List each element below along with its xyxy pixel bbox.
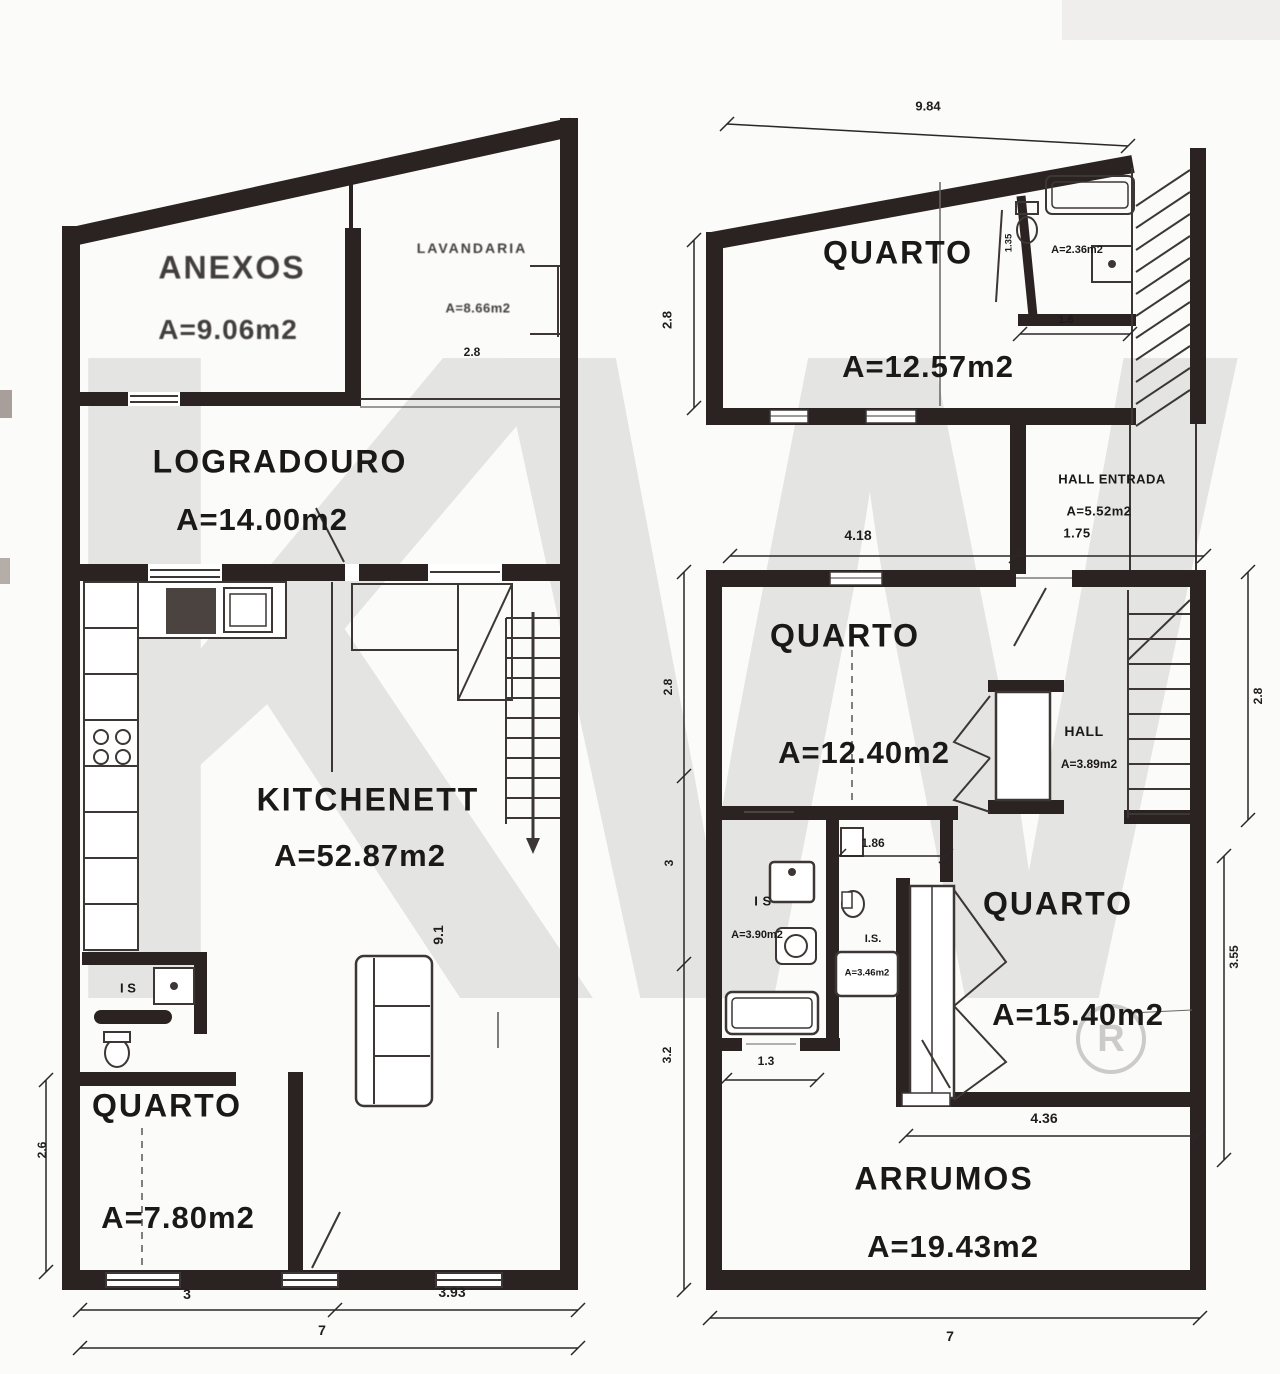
dim-label-lower-right-top: 2.8 [1251,688,1265,705]
dim-label-is-width: 1.3 [758,1054,775,1068]
dim-label-quarto2-width: 4.36 [1030,1110,1057,1126]
room-area-kitchenett: A=52.87m2 [274,838,446,874]
lower-plan-dimensions [677,565,1255,1325]
room-area-quarto2: A=15.40m2 [992,997,1164,1033]
dim-label-hall-entrada: 1.75 [1063,526,1090,541]
floorplan-drawing [0,0,1280,1374]
room-area-quarto1: A=12.40m2 [778,735,950,771]
room-label-arrumos: ARRUMOS [854,1161,1033,1198]
dim-label-is-upper-height: 1.35 [1004,234,1015,253]
room-label-is2: I.S. [865,933,882,945]
room-label-anexos: ANEXOS [158,250,305,287]
room-area-hall-entrada: A=5.52m2 [1066,504,1131,519]
dim-label-lower-left-bottom: 3.2 [660,1047,674,1064]
dim-label-left-total-width: 7 [318,1322,326,1338]
scanned-floorplan-page: KW R [0,0,1280,1374]
dim-label-lower-bottom: 7 [946,1328,954,1344]
dim-label-lower-right-mid: 3.55 [1227,945,1241,968]
room-area-logradouro: A=14.00m2 [176,502,348,538]
room-label-quarto1: QUARTO [770,618,920,655]
dim-label-upper-top: 9.84 [915,99,940,114]
room-label-hall-entrada: HALL ENTRADA [1058,472,1166,487]
dim-label-lower-top-left: 4.18 [844,527,871,543]
room-area-quarto-upper: A=12.57m2 [842,349,1014,385]
room-label-lavandaria: LAVANDARIA [417,240,527,256]
dim-label-is2: 1.86 [861,836,884,850]
room-label-is1: I S [754,894,771,909]
room-label-is-left: I S [120,981,136,996]
room-label-quarto-upper: QUARTO [823,235,973,272]
room-area-is2: A=3.46m2 [845,968,890,979]
left-plan-details [84,266,560,1287]
room-area-anexos: A=9.06m2 [158,314,298,346]
dim-label-quarto-width: 3 [183,1286,191,1302]
dim-label-lower-left-top: 2.8 [661,679,675,696]
dim-label-is-upper-width: 1.6 [1058,314,1073,326]
room-label-kitchenett: KITCHENETT [257,782,480,819]
room-area-lavandaria: A=8.66m2 [445,301,510,316]
room-label-logradouro: LOGRADOURO [153,444,408,481]
dim-label-quarto-height: 2.6 [35,1142,49,1159]
room-label-quarto2: QUARTO [983,886,1133,923]
room-label-hall: HALL [1064,723,1103,739]
dim-label-lavandaria: 2.8 [464,345,481,359]
dim-label-kitchen-height: 9.1 [430,925,446,944]
room-label-quarto-left: QUARTO [92,1088,242,1125]
room-area-is1: A=3.90m2 [731,929,783,941]
dim-label-upper-left: 2.8 [660,311,675,329]
room-area-hall: A=3.89m2 [1061,757,1117,771]
room-area-arrumos: A=19.43m2 [867,1229,1039,1265]
dim-label-lower-left-mid: 3 [662,860,676,867]
dim-label-kitchen-width: 3.93 [438,1284,465,1300]
room-area-quarto-left: A=7.80m2 [101,1200,255,1236]
room-area-is-upper: A=2.36m2 [1051,244,1103,256]
